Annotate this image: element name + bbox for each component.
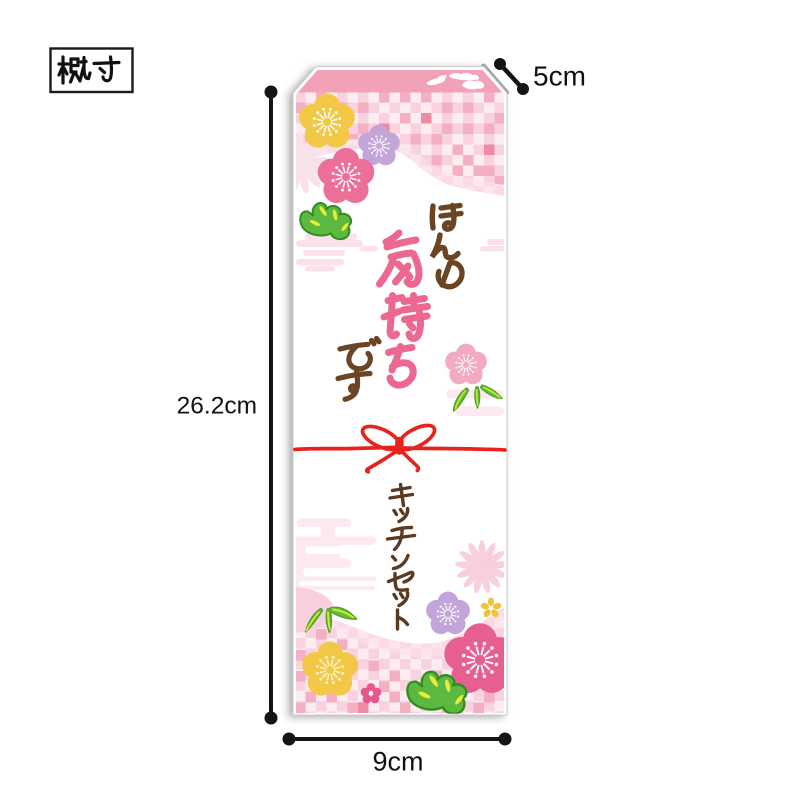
svg-text:5cm: 5cm: [533, 61, 586, 92]
svg-text:9cm: 9cm: [372, 747, 423, 777]
svg-text:26.2cm: 26.2cm: [177, 393, 257, 420]
